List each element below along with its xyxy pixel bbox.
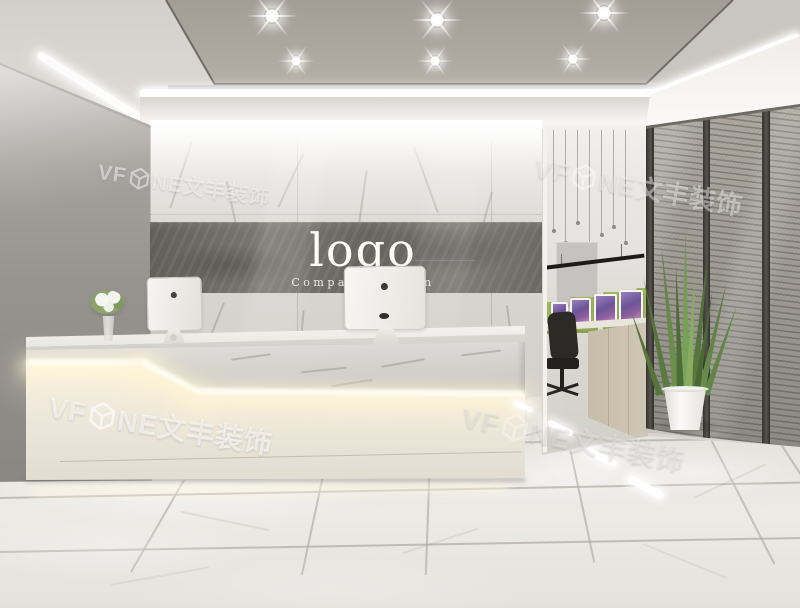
glass-mullion	[762, 104, 770, 470]
spotlight-core	[290, 55, 302, 67]
office-chair-post	[560, 369, 564, 389]
spotlight-core	[264, 8, 280, 24]
lamp-bulb	[552, 229, 556, 233]
apple-logo-icon	[381, 283, 388, 290]
floor-vein	[643, 543, 727, 578]
vfone-cube-icon	[87, 400, 117, 432]
vfone-cube-icon	[570, 162, 598, 192]
spotlight-core	[429, 55, 441, 67]
spotlight-core	[429, 12, 445, 28]
vfone-cube-icon	[500, 412, 531, 444]
spotlight-core	[567, 53, 579, 65]
plant-pot-rim	[661, 386, 709, 392]
apple-logo-icon	[171, 292, 177, 298]
monitor-screen	[596, 296, 615, 322]
cable-port	[379, 313, 389, 319]
watermark-text-vf: VF	[46, 392, 88, 430]
watermark-text-vf: VF	[532, 153, 572, 190]
reception-render: logo Company Slogan	[0, 0, 800, 608]
lamp-bulb	[576, 221, 580, 225]
lamp-bulb	[624, 241, 628, 245]
vase	[101, 316, 116, 341]
tile-seam	[772, 432, 800, 550]
spotlight-core	[596, 5, 612, 21]
desk-shadow	[26, 477, 525, 482]
flower-vase-group	[86, 282, 134, 342]
monitor-screen	[621, 292, 641, 320]
floor-vein	[402, 528, 479, 554]
flower	[90, 290, 124, 314]
tile-seam	[425, 427, 432, 575]
lamp-bulb	[612, 225, 616, 229]
watermark-text-vf: VF	[96, 161, 128, 189]
imac-monitor	[147, 277, 203, 332]
watermark-text-vf: VF	[459, 402, 502, 441]
stand-button	[170, 334, 177, 341]
imac-monitor	[344, 266, 427, 331]
cabinet-seam	[628, 322, 629, 443]
ceiling-led-strip	[140, 89, 656, 97]
office-chair-back	[547, 311, 579, 361]
lamp-bulb	[600, 233, 604, 237]
vfone-cube-icon	[128, 166, 151, 191]
marble-feature-wall: logo Company Slogan	[150, 120, 542, 400]
ceiling-recessed-panel	[160, 0, 735, 84]
potted-plant	[640, 220, 750, 442]
floor-reflection-desk-glow	[30, 480, 510, 497]
office-chair-seat	[546, 358, 579, 369]
